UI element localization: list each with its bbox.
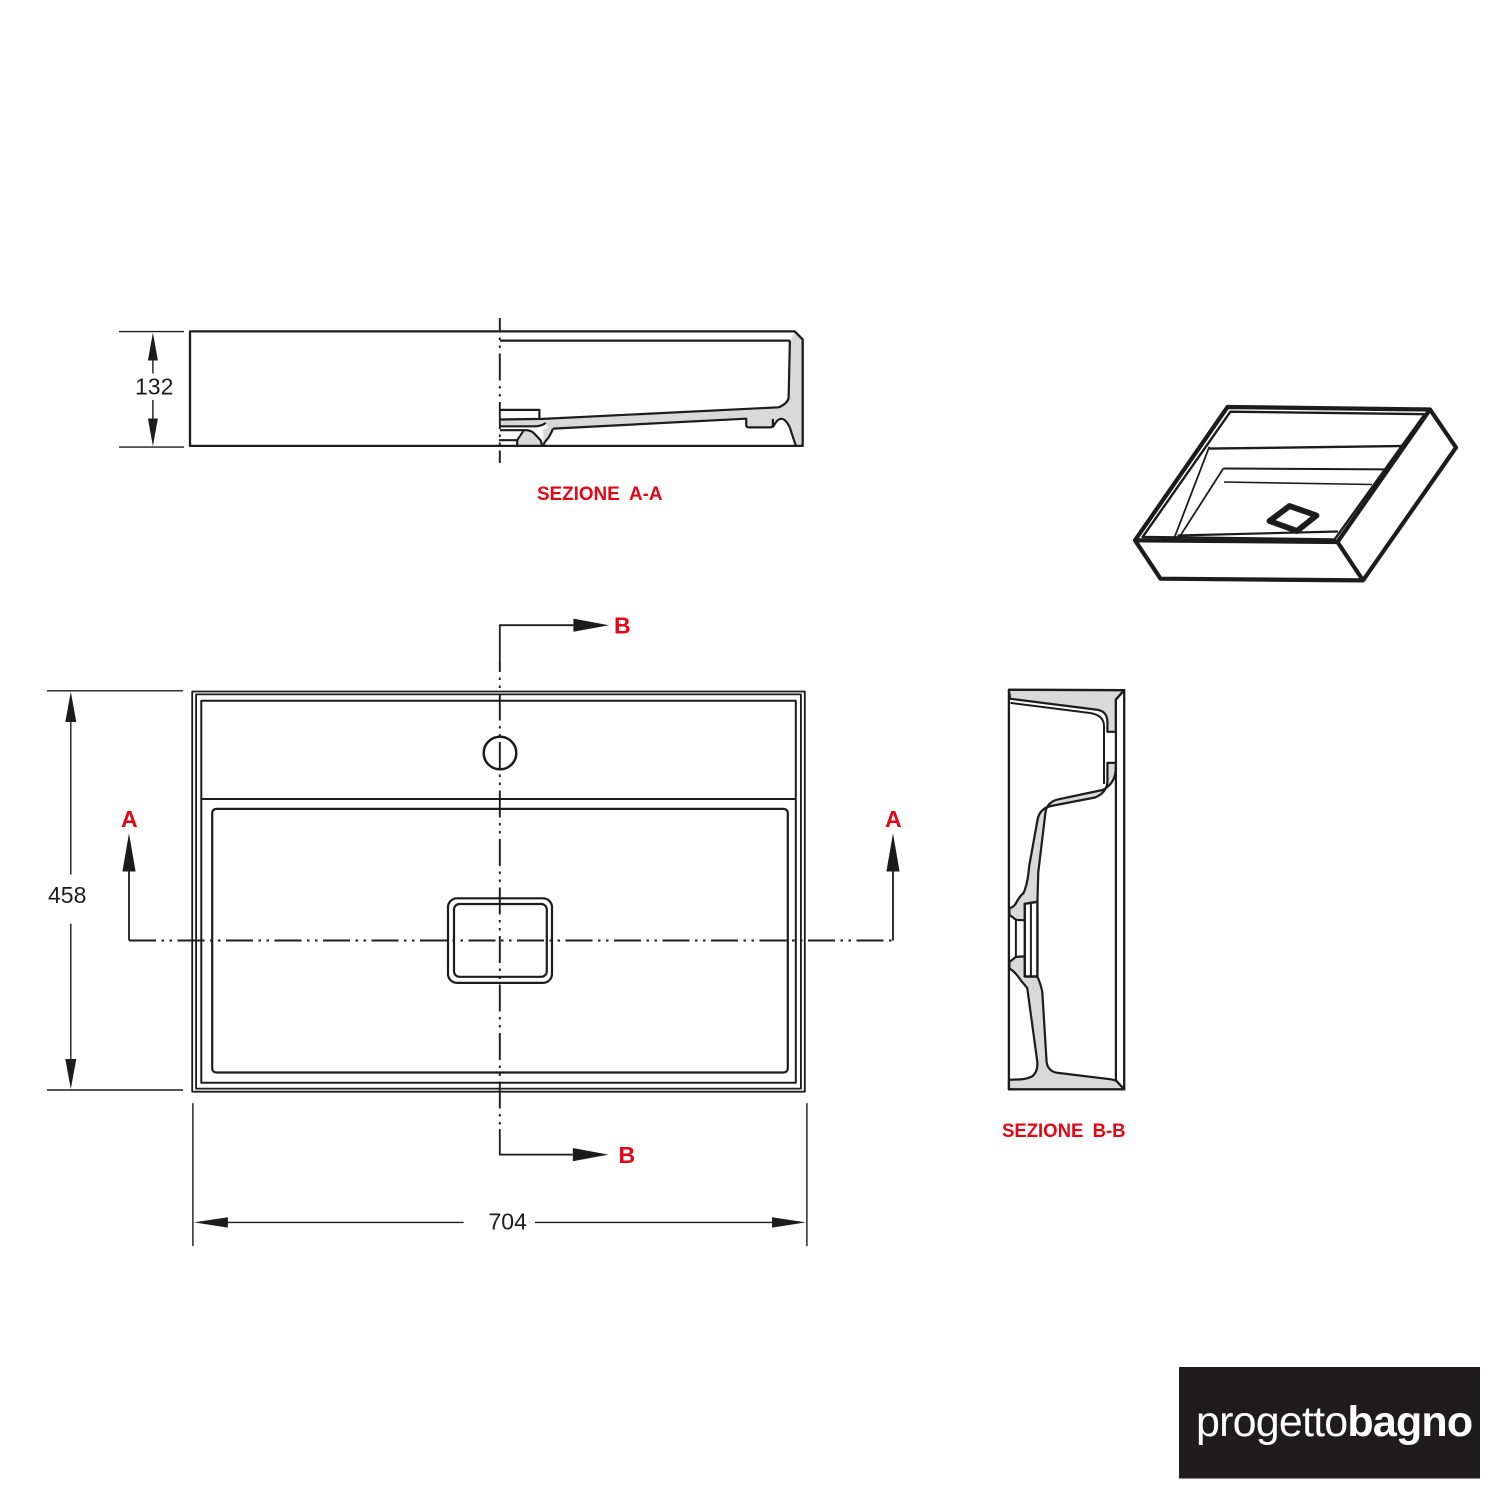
- svg-text:704: 704: [489, 1209, 528, 1235]
- svg-text:132: 132: [135, 374, 173, 400]
- svg-text:A: A: [885, 806, 902, 832]
- svg-text:SEZIONE A-A: SEZIONE A-A: [537, 483, 663, 505]
- svg-text:B: B: [614, 613, 631, 639]
- svg-text:A: A: [121, 806, 138, 832]
- svg-text:SEZIONE B-B: SEZIONE B-B: [1002, 1120, 1126, 1142]
- svg-text:progettobagno: progettobagno: [1196, 1398, 1472, 1446]
- svg-text:B: B: [619, 1142, 636, 1168]
- svg-text:458: 458: [48, 882, 86, 908]
